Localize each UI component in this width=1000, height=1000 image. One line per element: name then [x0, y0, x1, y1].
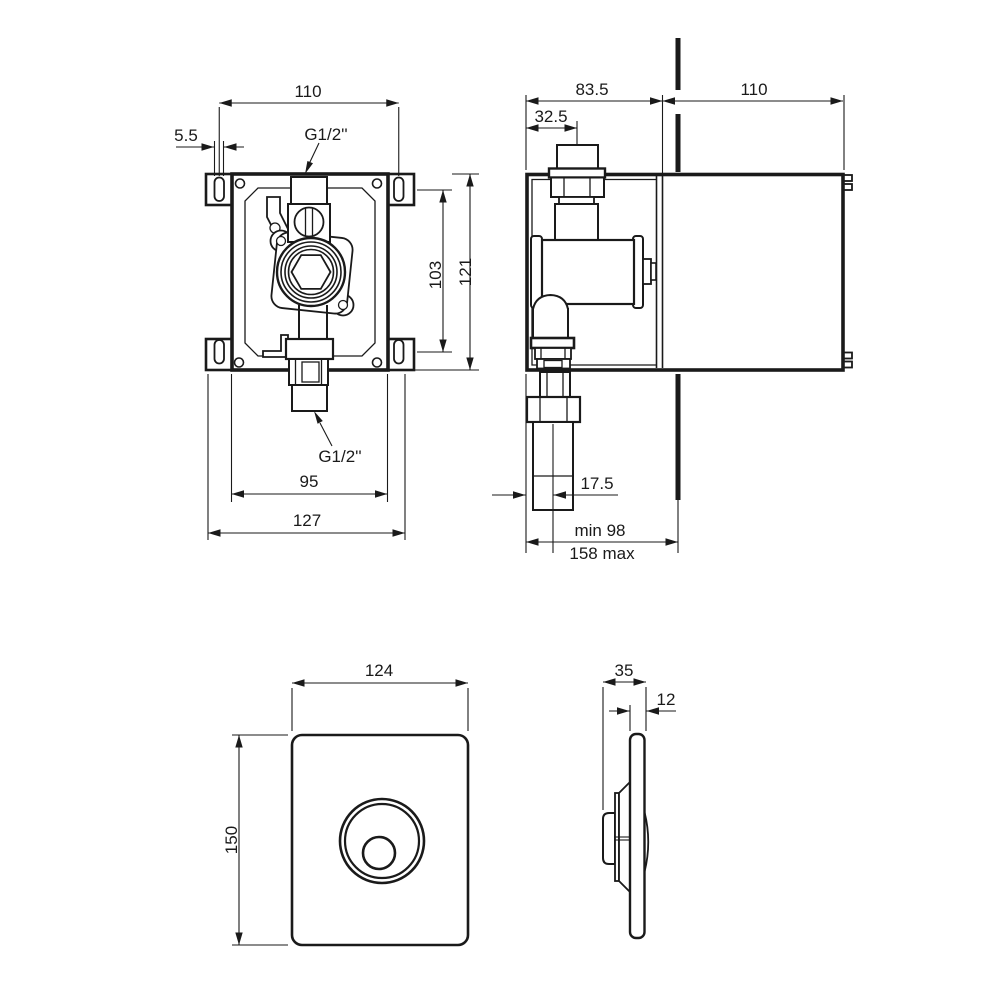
dimension-plate-thickness: 12: [609, 690, 676, 731]
side-view: 83.5 110 32.5 17.5 min 98 158 max: [492, 38, 852, 563]
dim-label-plate-depth: 35: [615, 661, 634, 680]
button-outer-ring: [340, 799, 424, 883]
dimension-slot-width: 5.5: [174, 126, 244, 176]
fixing-slot: [394, 340, 404, 364]
leader-arrow-icon: [314, 411, 323, 424]
inlet-pipe: [291, 177, 327, 204]
outlet-coupling: [286, 339, 333, 359]
corner-screw-icon: [373, 358, 382, 367]
dim-label-plate-thickness: 12: [657, 690, 676, 709]
outlet-flange: [531, 338, 574, 348]
faceplate-side-view: 35 12: [603, 661, 676, 938]
label-outlet-thread: G1/2'': [314, 411, 362, 466]
corner-screw-icon: [373, 179, 382, 188]
corner-screw-icon: [236, 179, 245, 188]
dim-label-depth-front: 83.5: [575, 80, 608, 99]
dim-label-overall-width: 127: [293, 511, 321, 530]
inlet-flange: [549, 169, 605, 178]
front-view: 110 5.5 G1/2'' 121 103 G1/2'': [174, 82, 479, 540]
dim-label-box-width: 95: [300, 472, 319, 491]
fixing-slot: [215, 340, 225, 364]
faceplate-front-view: 124 150: [222, 661, 468, 945]
inlet-thread-label: G1/2'': [304, 125, 347, 144]
technical-drawing-page: 110 5.5 G1/2'' 121 103 G1/2'': [0, 0, 1000, 1000]
corner-screw-icon: [235, 358, 244, 367]
adjustment-screw-icon: [295, 208, 324, 237]
label-inlet-thread: G1/2'': [304, 125, 347, 174]
dimension-plate-width: 124: [292, 661, 468, 731]
technical-drawing: 110 5.5 G1/2'' 121 103 G1/2'': [0, 0, 1000, 1000]
dim-label-plate-height: 150: [222, 826, 241, 854]
outlet-nut: [527, 397, 580, 422]
button-cap-profile: [603, 813, 615, 864]
dim-label-depth-behind-wall: 110: [740, 80, 767, 99]
push-button: [340, 799, 424, 883]
valve-main-body: [542, 240, 634, 304]
dim-label-install-depth-max: 158 max: [569, 544, 635, 563]
dim-label-plate-width: 124: [365, 661, 393, 680]
dimension-install-depth: min 98 158 max: [526, 521, 678, 563]
dimension-inlet-offset: 32.5: [526, 107, 577, 146]
fixing-slot: [394, 178, 404, 202]
dimension-depth-behind-wall: 110: [663, 80, 845, 170]
valve-upper-body-side: [555, 204, 598, 240]
dim-label-outlet-offset: 17.5: [580, 474, 613, 493]
dim-label-slot-width: 5.5: [174, 126, 198, 145]
outlet-stub: [292, 385, 327, 411]
spindle-knob: [643, 259, 651, 284]
dim-label-install-depth-min: min 98: [574, 521, 625, 540]
dim-label-inlet-offset: 32.5: [534, 107, 567, 126]
dim-label-slot-spacing-h: 110: [294, 82, 321, 101]
dimension-slot-spacing-v: 103: [417, 190, 452, 352]
fixing-slot: [215, 178, 225, 202]
hex-socket-icon: [292, 255, 331, 289]
outlet-thread-label: G1/2'': [318, 447, 361, 466]
dim-label-box-height: 121: [456, 258, 475, 286]
leader-arrow-icon: [305, 161, 313, 174]
faceplate-strip: [630, 734, 645, 938]
dim-label-slot-spacing-v: 103: [426, 261, 445, 289]
outlet-stub-side: [540, 372, 570, 397]
dimension-plate-height: 150: [222, 735, 288, 945]
faceplate-profile: [603, 734, 648, 938]
inlet-nut: [551, 178, 604, 198]
